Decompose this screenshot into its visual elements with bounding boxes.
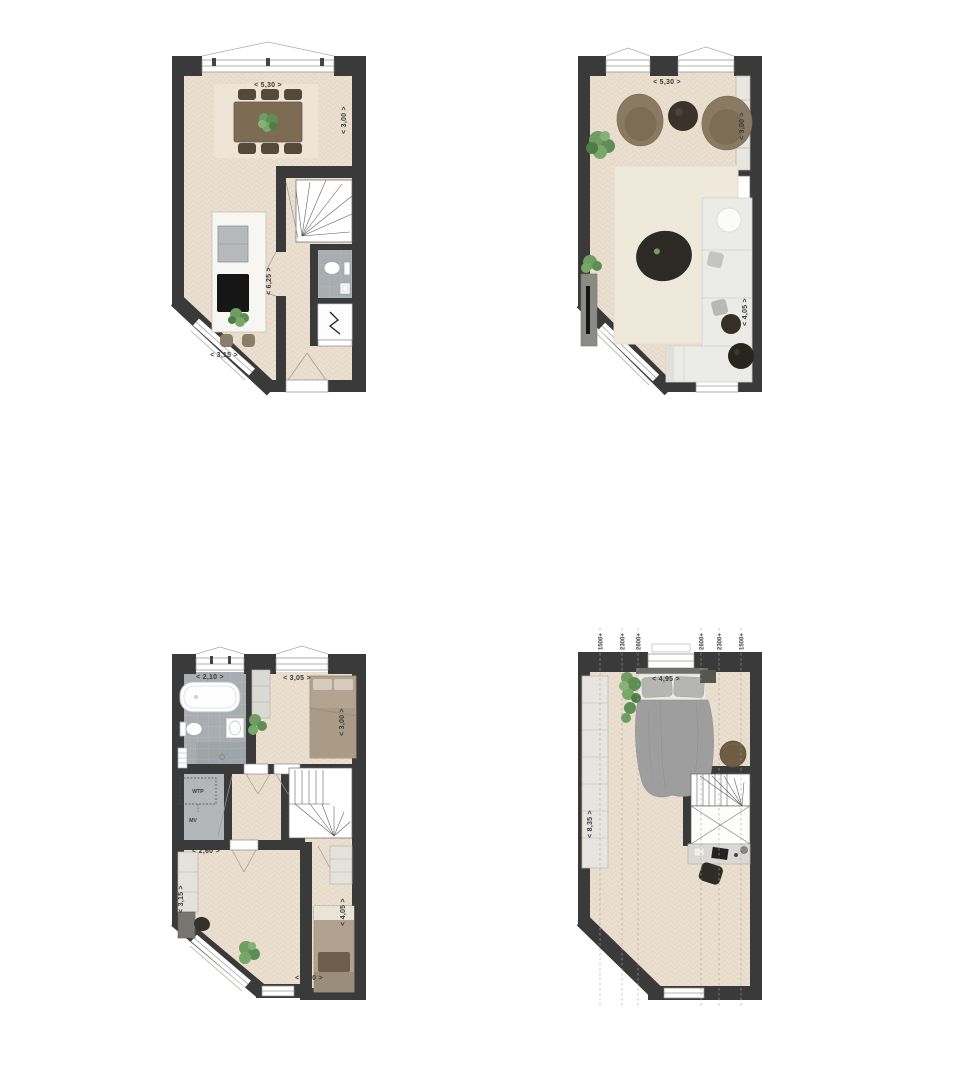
toilet-tank	[180, 722, 186, 736]
floorplan-bottom-right: 1500+ 2300+ 2600+ 2600+ 2300+ 1500+ < 4,…	[570, 615, 770, 1015]
height-label: 2600+	[637, 633, 643, 650]
dim-depth-right: < 3,00 >	[341, 106, 348, 134]
desk	[178, 912, 195, 938]
cooktop	[217, 274, 249, 312]
dim-hall-depth: < 6,25 >	[266, 267, 273, 295]
dim-bed2-depth: < 4,05 >	[340, 898, 347, 926]
dim-bed1-depth: < 3,00 >	[339, 708, 346, 736]
bathtub	[180, 682, 240, 712]
laptop	[711, 847, 728, 860]
wardrobe	[330, 846, 352, 884]
toilet	[324, 262, 340, 275]
floorplan-top-left: < 5,30 > < 3,00 > < 8,35 > < 6,25 > < 3,…	[160, 40, 375, 405]
closet-floor	[178, 774, 224, 842]
round-side-table	[668, 101, 698, 131]
toilet-room	[318, 250, 352, 298]
pouf	[720, 741, 746, 767]
toilet	[186, 723, 202, 736]
headboard	[636, 668, 708, 674]
staircase	[289, 768, 352, 838]
dining-table	[234, 89, 302, 154]
dim-depth-left: < 8,35 >	[580, 205, 587, 233]
height-label: 1500+	[599, 633, 605, 650]
height-label: 2600+	[700, 633, 706, 650]
wardrobe	[582, 676, 608, 868]
dim-bed3-depth: < 3,15 >	[178, 885, 185, 913]
dim-bed2-width: < 2,60 >	[295, 975, 323, 982]
cabinet	[252, 670, 270, 718]
dim-width-bottom: < 3,15 >	[210, 352, 238, 359]
closet-label-mv: MV	[189, 818, 197, 824]
dim-bed3-width: < 2,60 >	[192, 848, 220, 855]
floorplan-sheet: < 5,30 > < 3,00 > < 8,35 > < 6,25 > < 3,…	[0, 0, 972, 1080]
dim-width-top: < 5,30 >	[653, 79, 681, 86]
dim-bed1-width: < 3,05 >	[283, 675, 311, 682]
sofa-side-table	[717, 208, 741, 232]
desk-lamp	[741, 847, 748, 854]
height-label: 2300+	[621, 633, 627, 650]
front-facade-window	[202, 42, 334, 72]
papers	[694, 848, 704, 856]
floorplan-top-right: < 5,30 > < 3,00 > < 8,35 > < 4,05 >	[570, 40, 770, 405]
height-label: 2300+	[718, 633, 724, 650]
floorplan-bottom-left: WTP MV < 2	[160, 645, 375, 1005]
dim-bed-width: < 4,95 >	[652, 676, 680, 683]
dim-depth-left: < 8,35 >	[177, 214, 184, 242]
washbasin	[340, 283, 350, 294]
meter-cupboard	[318, 304, 352, 346]
closet-label-wtp: WTP	[192, 789, 204, 795]
dim-bath-width: < 2,10 >	[196, 674, 224, 681]
staircase	[286, 180, 352, 242]
dim-right-upper: < 3,00 >	[739, 112, 746, 140]
kitchen-island	[212, 212, 266, 347]
nightstand	[700, 670, 716, 683]
mouse	[734, 853, 738, 857]
dim-width-top: < 5,30 >	[254, 82, 282, 89]
dim-right-lower: < 4,05 >	[742, 298, 749, 326]
dim-depth-left: < 8,35 >	[587, 810, 594, 838]
height-label: 1500+	[740, 633, 746, 650]
